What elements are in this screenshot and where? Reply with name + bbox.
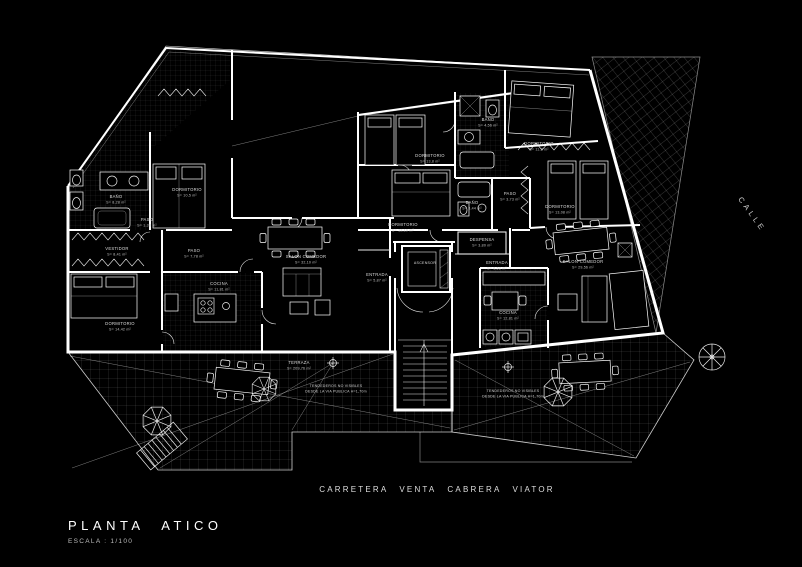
label-salon1-area: S= 32,10 m² (295, 261, 317, 265)
label-entrada1-area: S= 5,87 m² (367, 279, 387, 283)
label-vestidor-name: VESTIDOR (105, 246, 128, 251)
bed-dorm5 (508, 81, 573, 137)
floor-plan-canvas: BAÑO S= 8,28 m² DORMITORIO S= 10,5 m² PA… (0, 0, 802, 567)
bed-dorm4 (392, 170, 450, 216)
sofa-set-right (558, 243, 649, 330)
label-bano1-name: BAÑO (110, 194, 123, 199)
label-paso2-area: S= 7,78 m² (184, 255, 204, 259)
label-ascensor: ASCENSOR (414, 261, 436, 265)
label-bano1-area: S= 8,28 m² (106, 201, 126, 205)
label-paso1-area: S= 1,38 m² (137, 224, 157, 228)
dining-table-left (260, 219, 330, 257)
label-dorm4-name: DORMITORIO (388, 222, 418, 227)
note-left-line1: TENDEDEROS NO VISIBLES (310, 384, 363, 388)
label-entrada1-name: ENTRADA (366, 272, 388, 277)
label-dorm3-area: S= 13,8 m² (420, 160, 440, 164)
label-dorm3-name: DORMITORIO (415, 153, 445, 158)
floor-plan-page: BAÑO S= 8,28 m² DORMITORIO S= 10,5 m² PA… (0, 0, 802, 567)
note-right-line2: DESDE LA VIA PUBLICA H=1,70m (482, 395, 544, 399)
label-cocina1-name: COCINA (210, 281, 228, 286)
sofa-set-left (283, 268, 330, 315)
scale-label: ESCALA : 1/100 (68, 538, 133, 545)
note-left-line2: DESDE LA VIA PUBLICA H=1,70m (305, 390, 367, 394)
road-label: CARRETERA VENTA CABRERA VIATOR (319, 485, 554, 494)
label-dorm2-name: DORMITORIO (105, 321, 135, 326)
label-cocina1-area: S= 11,81 m² (208, 288, 230, 292)
label-dorm4-area: S= 12,10 m² (392, 229, 414, 233)
label-dorm1-name: DORMITORIO (172, 187, 202, 192)
stair-core (393, 242, 455, 410)
street-right-label: CALLE (736, 195, 768, 234)
label-bano3-name: BAÑO (466, 200, 479, 205)
label-paso3-name: PASO (504, 191, 517, 196)
label-vestidor-area: S= 8,41 m² (107, 253, 127, 257)
label-dorm5-area: S= 11,2 m² (529, 148, 549, 152)
label-dorm2-area: S= 14,42 m² (109, 328, 131, 332)
label-salon2-name: SALON-COMEDOR (563, 259, 604, 264)
bed-dorm2 (71, 274, 137, 318)
label-cocina2-area: S= 12,81 m² (497, 317, 519, 321)
label-paso3-area: S= 3,73 m² (500, 198, 520, 202)
label-bano3-area: S= 3,44 m² (462, 207, 482, 211)
label-bano2-area: S= 4,56 m² (478, 124, 498, 128)
label-dorm1-area: S= 10,5 m² (177, 194, 197, 198)
label-despensa-name: DESPENSA (470, 237, 495, 242)
label-paso2-name: PASO (188, 248, 201, 253)
label-dorm5-name: DORMITORIO (524, 141, 554, 146)
label-despensa-area: S= 3,80 m² (472, 244, 492, 248)
label-entrada2-area: S= 6,52 m² (487, 267, 507, 271)
note-right-line1: TENDEDEROS NO VISIBLES (487, 389, 540, 393)
label-salon2-area: S= 29,56 m² (572, 266, 594, 270)
page-title: PLANTA ATICO (68, 518, 223, 533)
label-bano2-name: BAÑO (482, 117, 495, 122)
label-dorm6-name: DORMITORIO (545, 204, 575, 209)
label-terraza-area: S= 209,76 m² (287, 367, 312, 371)
label-terraza-name: TERRAZA (288, 360, 309, 365)
label-paso1-name: PASO (141, 217, 154, 222)
label-dorm6-area: S= 13,08 m² (549, 211, 571, 215)
label-cocina2-name: COCINA (499, 310, 517, 315)
label-salon1-name: SALON COMEDOR (286, 254, 326, 259)
label-entrada2-name: ENTRADA (486, 260, 508, 265)
bathroom3-fixtures (458, 182, 490, 216)
street-compass (699, 344, 725, 370)
